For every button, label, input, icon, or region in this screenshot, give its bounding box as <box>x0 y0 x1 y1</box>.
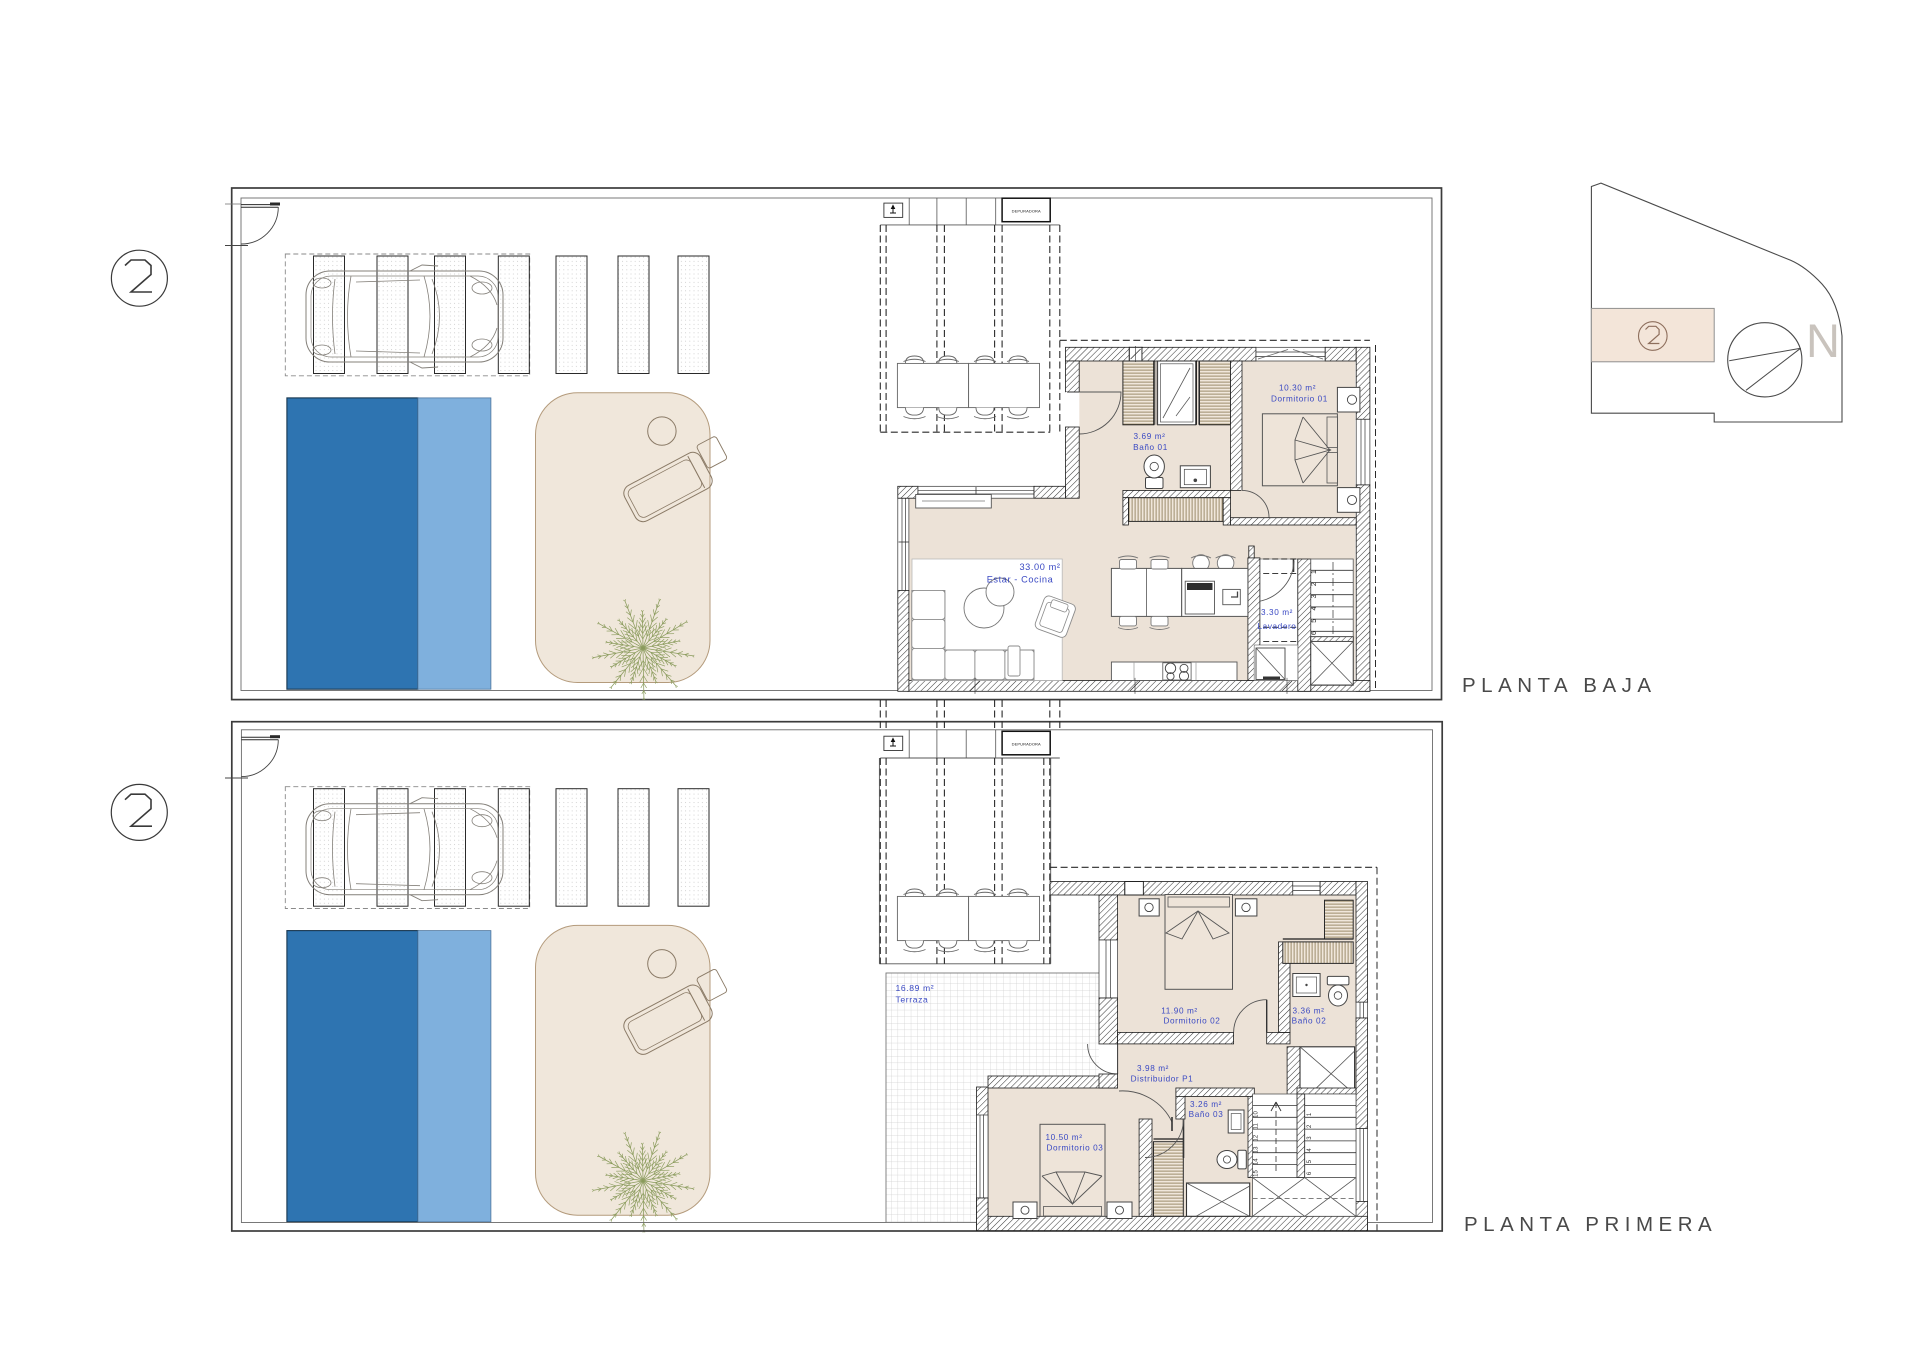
svg-text:10.30 m²: 10.30 m² <box>1279 384 1316 393</box>
svg-text:Estar - Cocina: Estar - Cocina <box>987 575 1054 585</box>
svg-text:10: 10 <box>1254 1111 1260 1118</box>
svg-text:3.69 m²: 3.69 m² <box>1134 432 1166 441</box>
svg-text:3.26 m²: 3.26 m² <box>1190 1100 1222 1109</box>
svg-text:Dormitorio 01: Dormitorio 01 <box>1271 395 1328 404</box>
svg-text:2: 2 <box>1311 582 1318 586</box>
svg-text:16.89 m²: 16.89 m² <box>896 983 935 993</box>
svg-text:PLANTA PRIMERA: PLANTA PRIMERA <box>1464 1213 1717 1236</box>
svg-text:Dormitorio 03: Dormitorio 03 <box>1047 1144 1104 1153</box>
svg-text:14: 14 <box>1254 1158 1260 1165</box>
svg-text:11.90 m²: 11.90 m² <box>1161 1007 1198 1016</box>
svg-text:N: N <box>1806 314 1840 367</box>
svg-text:3.30 m²: 3.30 m² <box>1261 608 1293 617</box>
svg-text:3: 3 <box>1311 594 1318 598</box>
svg-text:Distribuidor P1: Distribuidor P1 <box>1131 1075 1194 1084</box>
svg-text:Terraza: Terraza <box>896 995 929 1005</box>
svg-text:PLANTA BAJA: PLANTA BAJA <box>1462 674 1657 697</box>
svg-text:DEPURADORA: DEPURADORA <box>1012 208 1041 213</box>
svg-text:Dormitorio 02: Dormitorio 02 <box>1164 1017 1221 1026</box>
svg-text:12: 12 <box>1254 1134 1260 1141</box>
svg-text:10.50 m²: 10.50 m² <box>1045 1133 1082 1142</box>
svg-text:1: 1 <box>1311 570 1318 574</box>
svg-text:3.98 m²: 3.98 m² <box>1137 1064 1169 1073</box>
svg-text:4: 4 <box>1311 607 1318 611</box>
svg-text:15: 15 <box>1254 1170 1260 1177</box>
svg-text:Baño 02: Baño 02 <box>1292 1017 1327 1026</box>
svg-text:5: 5 <box>1311 619 1318 623</box>
svg-text:33.00 m²: 33.00 m² <box>1019 562 1060 572</box>
svg-text:3.36 m²: 3.36 m² <box>1293 1007 1325 1016</box>
svg-text:DEPURADORA: DEPURADORA <box>1012 741 1041 746</box>
svg-text:Lavadero: Lavadero <box>1258 622 1297 631</box>
svg-text:6: 6 <box>1311 631 1318 635</box>
svg-text:13: 13 <box>1254 1146 1260 1153</box>
svg-text:Baño 01: Baño 01 <box>1133 443 1168 452</box>
svg-text:Baño 03: Baño 03 <box>1189 1110 1224 1119</box>
svg-text:11: 11 <box>1254 1123 1260 1130</box>
